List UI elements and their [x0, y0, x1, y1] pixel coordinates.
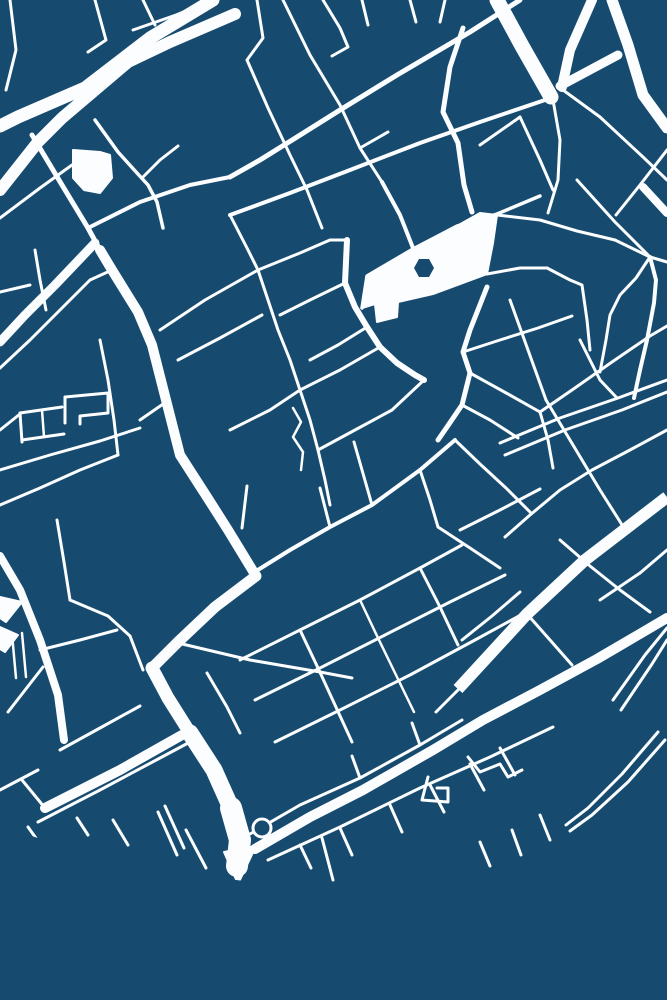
map-poster [0, 0, 667, 1000]
map-background [0, 0, 667, 1000]
city-map [0, 0, 667, 1000]
minor-road [20, 413, 22, 442]
pond-loop [253, 819, 271, 837]
